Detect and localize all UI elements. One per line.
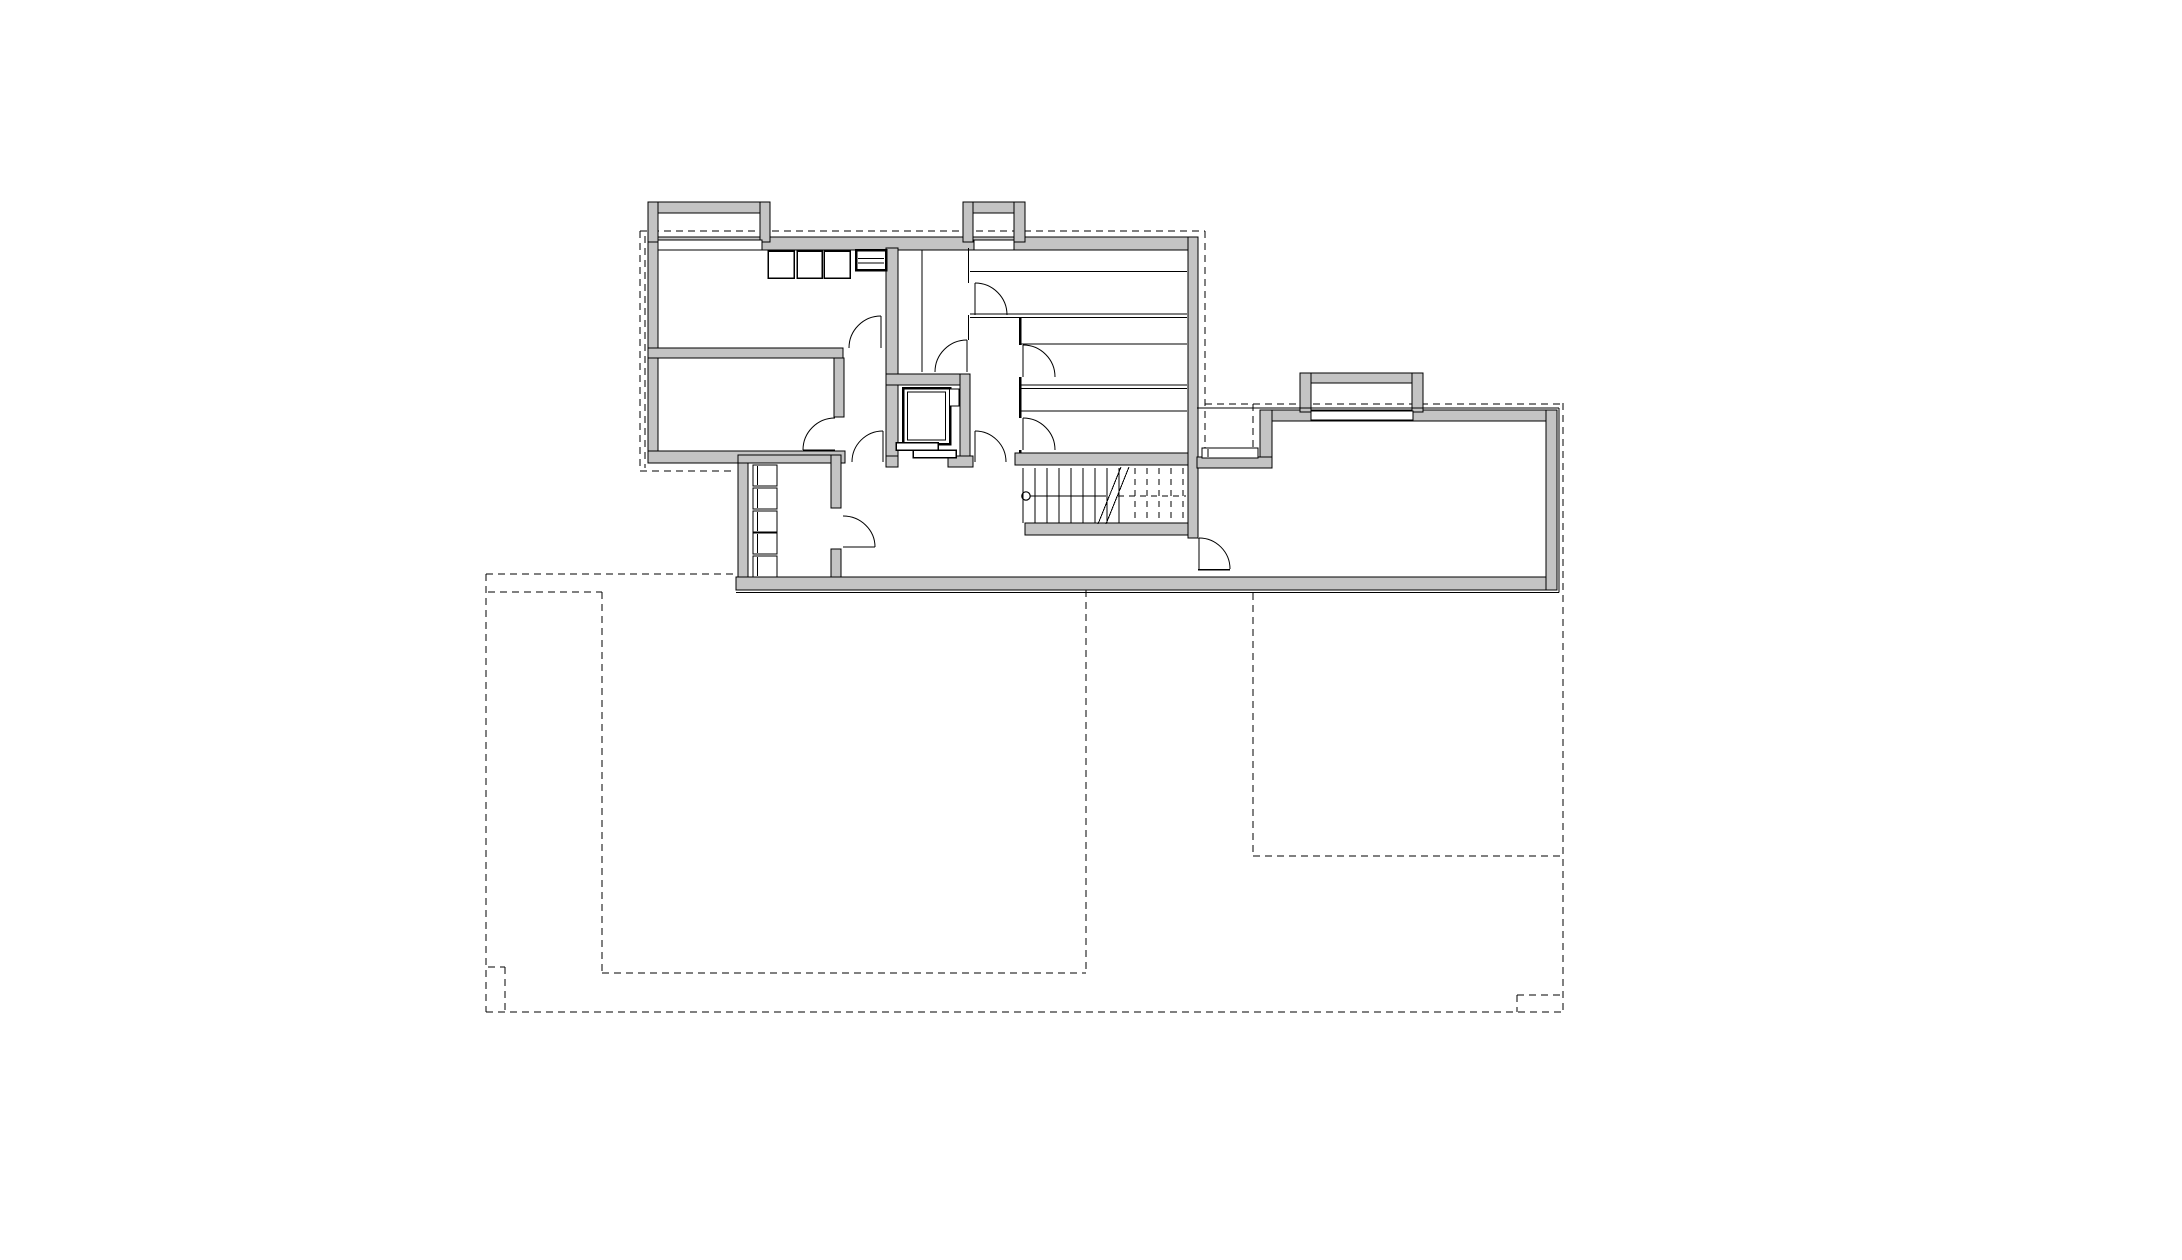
window [1202, 448, 1258, 458]
floor-plan-drawing [0, 0, 2182, 1260]
door-hall-west-swing [852, 431, 883, 462]
wall [648, 202, 658, 242]
storage-box [824, 251, 850, 278]
wall [1025, 523, 1188, 535]
wall [886, 374, 970, 385]
wall [736, 577, 1557, 590]
door-storage-2-swing [1023, 345, 1055, 377]
wall [1197, 457, 1272, 468]
storage-box [856, 250, 886, 270]
elevator-door-panel [913, 450, 956, 458]
storage-box [768, 251, 794, 278]
elevator-layer [896, 388, 959, 458]
door-hall-east-swing [975, 431, 1006, 462]
storage-box [753, 533, 777, 554]
elevator-door-panel [896, 443, 938, 451]
elevator-car [903, 388, 950, 444]
storage-box [753, 488, 777, 509]
wall [886, 374, 898, 466]
wall [1412, 373, 1423, 412]
wall [1546, 410, 1557, 590]
elevator-counterweight [950, 389, 960, 406]
wall [886, 456, 898, 467]
storage-box [797, 251, 822, 278]
door-room-upper-left-swing [849, 316, 881, 348]
wall [648, 348, 843, 358]
wall [834, 358, 844, 417]
wall [1015, 453, 1188, 465]
door-wing-passage-swing [1199, 538, 1230, 569]
window [1311, 411, 1413, 420]
wall [1188, 237, 1198, 538]
window [658, 240, 762, 250]
storage-box [753, 511, 777, 532]
wall [886, 248, 898, 374]
wall [738, 455, 838, 463]
wall [963, 202, 973, 242]
wall [831, 455, 841, 508]
floor-plan-page [0, 0, 2182, 1260]
wall [960, 374, 970, 466]
wall [760, 202, 770, 242]
storage-box [753, 556, 777, 577]
stair-layer [1022, 467, 1186, 524]
door-storage-1-swing [975, 283, 1007, 315]
storage-box [753, 465, 777, 486]
wall [1014, 202, 1025, 242]
door-room-lower-left-swing [803, 418, 835, 450]
wall [1300, 373, 1311, 412]
furniture-layer [753, 250, 886, 577]
door-storage-3-swing [1023, 418, 1055, 450]
door-narrow-room-swing [935, 340, 967, 372]
wall [648, 202, 770, 213]
wall [738, 455, 748, 590]
door-annex-room-swing [843, 516, 875, 547]
window [974, 240, 1014, 250]
wall [1300, 373, 1423, 383]
